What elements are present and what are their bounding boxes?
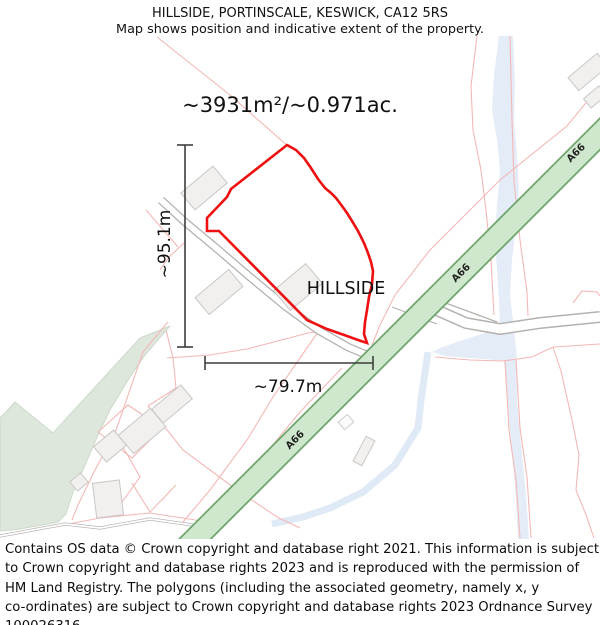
footer-line: Contains OS data © Crown copyright and d… bbox=[5, 540, 597, 559]
river-south bbox=[504, 360, 529, 539]
footer-line: 100026316. bbox=[5, 617, 597, 625]
footer-line: to Crown copyright and database rights 2… bbox=[5, 559, 597, 578]
map-canvas: ~3931m²/~0.971ac. HILLSIDE ~95.1m ~79.7m… bbox=[0, 36, 600, 539]
building bbox=[353, 436, 375, 465]
map-header: HILLSIDE, PORTINSCALE, KESWICK, CA12 5RS… bbox=[0, 5, 600, 38]
building bbox=[568, 53, 600, 90]
building bbox=[195, 269, 243, 314]
area-label: ~3931m²/~0.971ac. bbox=[182, 93, 398, 117]
map-labels: ~3931m²/~0.971ac. HILLSIDE ~95.1m ~79.7m… bbox=[155, 93, 588, 452]
property-map-page: HILLSIDE, PORTINSCALE, KESWICK, CA12 5RS… bbox=[0, 0, 600, 625]
width-dimension-label: ~79.7m bbox=[254, 377, 323, 397]
property-name-label: HILLSIDE bbox=[307, 279, 386, 299]
height-dimension-label: ~95.1m bbox=[155, 210, 175, 279]
footer-line: co-ordinates) are subject to Crown copyr… bbox=[5, 598, 597, 617]
page-title: HILLSIDE, PORTINSCALE, KESWICK, CA12 5RS bbox=[0, 5, 600, 22]
copyright-footer: Contains OS data © Crown copyright and d… bbox=[5, 540, 597, 625]
building bbox=[92, 480, 123, 518]
building bbox=[338, 414, 354, 429]
footer-line: HM Land Registry. The polygons (includin… bbox=[5, 579, 597, 598]
building bbox=[583, 86, 600, 108]
